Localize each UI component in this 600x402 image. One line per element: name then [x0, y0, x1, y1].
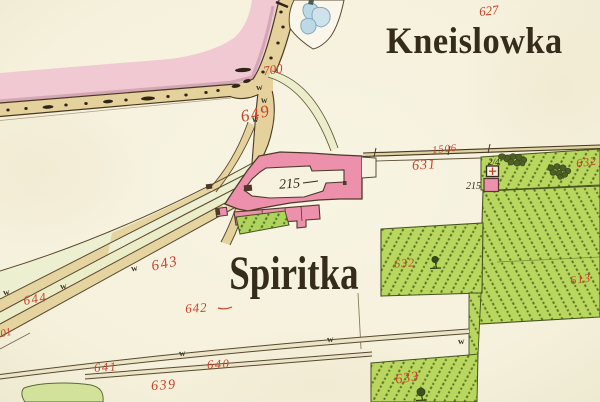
svg-text:642: 642 — [185, 299, 208, 316]
svg-text:627: 627 — [478, 2, 499, 19]
svg-text:613: 613 — [569, 271, 592, 288]
svg-text:Spiritka: Spiritka — [229, 248, 358, 301]
svg-text:639: 639 — [151, 377, 177, 394]
svg-text:632: 632 — [575, 154, 598, 171]
svg-text:w: w — [327, 334, 335, 344]
svg-text:Kneislowka: Kneislowka — [386, 20, 563, 61]
svg-text:640: 640 — [207, 357, 231, 372]
svg-text:631: 631 — [412, 157, 437, 174]
svg-text:215: 215 — [279, 176, 301, 192]
svg-text:w: w — [179, 348, 187, 358]
svg-text:215: 215 — [466, 181, 481, 192]
svg-text:700: 700 — [262, 61, 284, 79]
svg-text:2/4: 2/4 — [488, 157, 500, 167]
svg-text:641: 641 — [94, 359, 118, 375]
svg-text:632: 632 — [394, 255, 416, 270]
svg-text:w: w — [256, 82, 264, 92]
svg-text:w: w — [458, 336, 466, 346]
